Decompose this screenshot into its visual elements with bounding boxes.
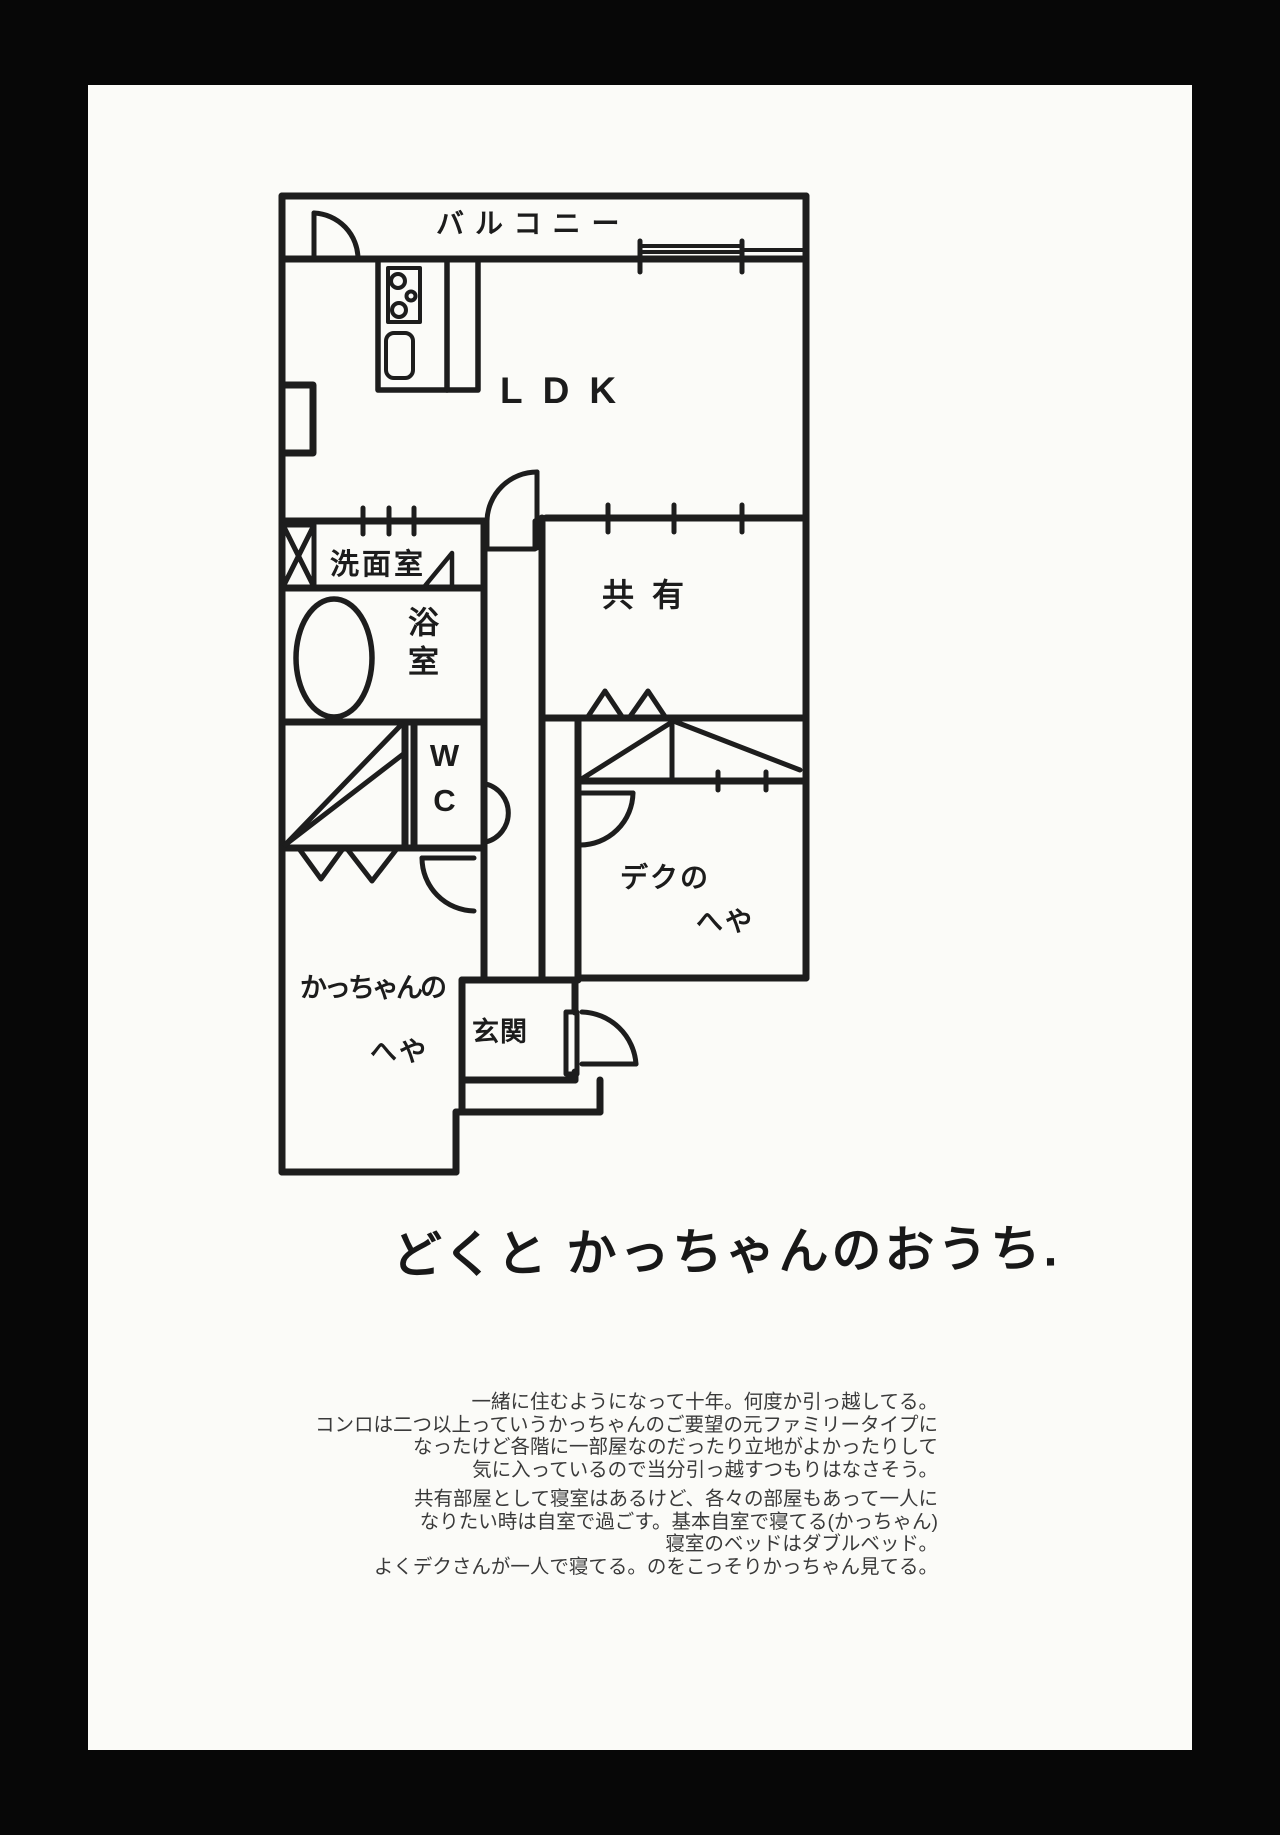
notes-line: なりたい時は自室で過ごす。基本自室で寝てる(かっちゃん) (374, 1511, 938, 1534)
ldk-label: LDK (500, 370, 636, 412)
notes-line: 寝室のベッドはダブルベッド。 (374, 1533, 938, 1556)
notes-line: よくデクさんが一人で寝てる。のをこっそりかっちゃん見てる。 (374, 1556, 938, 1579)
kacchan-room-label-line2: へや (370, 1030, 428, 1069)
notes-line: 気に入っているので当分引っ越すつもりはなさそう。 (315, 1459, 938, 1482)
scanned-page: バルコニー LDK 洗面室 浴室 WC 共有 デクの へや かっちゃんの へや … (0, 0, 1280, 1835)
deku-room-label-line2: へや (696, 900, 754, 939)
notes-line: 共有部屋として寝室はあるけど、各々の部屋もあって一人に (374, 1488, 938, 1511)
washing-machine-icon (283, 525, 314, 587)
sliding-window-icon (640, 246, 806, 252)
notes-line: なったけど各階に一部屋なのだったり立地がよかったりして (315, 1436, 938, 1459)
washroom-door-mark (424, 553, 452, 587)
wc-label: WC (426, 738, 462, 828)
balcony-label: バルコニー (436, 202, 630, 242)
walls (282, 196, 806, 1172)
entrance-label: 玄関 (472, 1010, 528, 1049)
kacchan-room-label-line1: かっちゃんの (300, 966, 444, 1005)
bathtub-icon (296, 599, 372, 717)
washroom-label: 洗面室 (330, 541, 426, 583)
notes-paragraph-2: 共有部屋として寝室はあるけど、各々の部屋もあって一人に なりたい時は自室で過ごす… (374, 1488, 938, 1578)
deku-room-label-line1: デクの (620, 856, 710, 896)
notes-line: 一緒に住むようになって十年。何度か引っ越してる。 (315, 1391, 938, 1414)
notes-paragraph-1: 一緒に住むようになって十年。何度か引っ越してる。 コンロは二つ以上っていうかっち… (315, 1391, 938, 1481)
stove-icon (386, 268, 420, 378)
shared-room-label: 共有 (602, 570, 702, 616)
entrance-door-icon (566, 1012, 636, 1074)
notes-line: コンロは二つ以上っていうかっちゃんのご要望の元ファミリータイプに (315, 1414, 938, 1437)
handwritten-title: どくと かっちゃんのおうち. (392, 1209, 1061, 1288)
bathroom-label: 浴室 (398, 606, 443, 684)
